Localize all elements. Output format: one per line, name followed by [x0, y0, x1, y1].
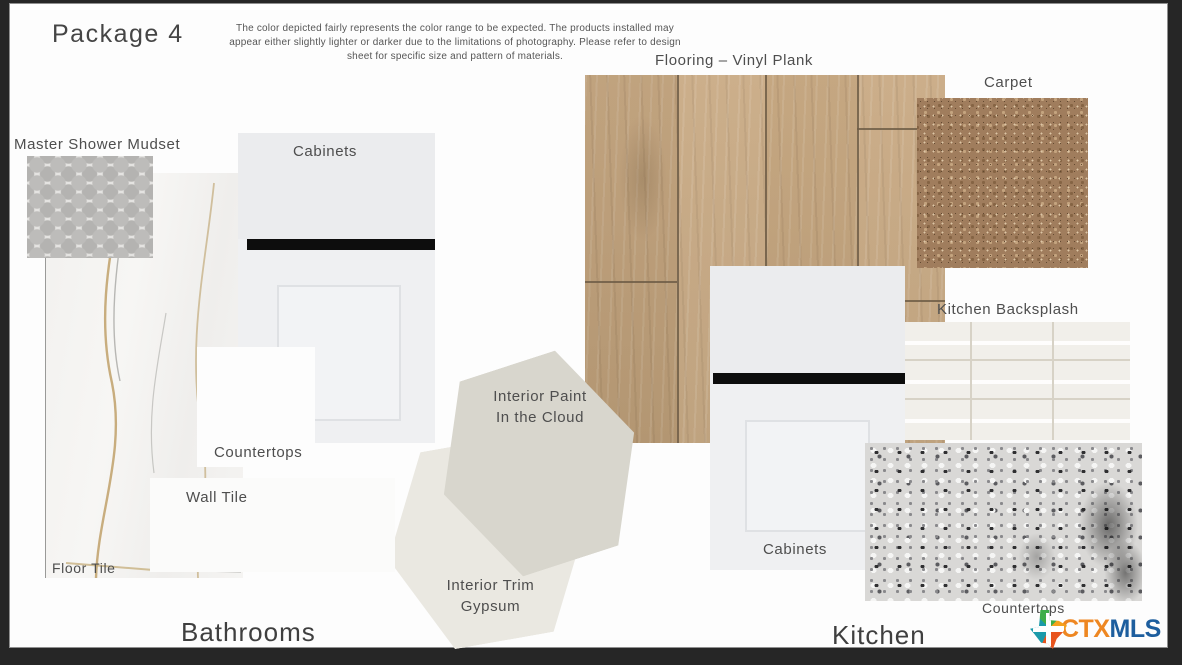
logo-ctx-text: CTX: [1061, 615, 1110, 644]
interior-paint-label: Interior Paint: [455, 386, 625, 407]
interior-trim-color-name: Gypsum: [408, 596, 573, 617]
cabinet-handle-bar: [713, 373, 905, 384]
logo-mls-text: MLS: [1110, 615, 1161, 644]
cabinet-handle-bar: [247, 239, 435, 250]
color-disclaimer-text: The color depicted fairly represents the…: [226, 22, 684, 64]
design-board: Package 4 The color depicted fairly repr…: [0, 0, 1182, 665]
interior-paint-color-name: In the Cloud: [455, 407, 625, 428]
kitchen-backsplash-label: Kitchen Backsplash: [937, 301, 1079, 318]
interior-trim-label: Interior Trim: [408, 575, 573, 596]
master-shower-mudset-swatch: [27, 156, 153, 258]
grout-line: [905, 398, 1130, 400]
bathroom-cabinets-label: Cabinets: [293, 143, 357, 160]
kitchen-section-label: Kitchen: [832, 620, 926, 651]
cabinet-shaker-panel: [745, 420, 870, 532]
plus-icon: [1033, 626, 1064, 632]
grout-line: [1052, 322, 1054, 440]
bathroom-countertops-label: Countertops: [214, 444, 302, 461]
plank-seam: [585, 281, 677, 283]
flooring-vinyl-plank-label: Flooring – Vinyl Plank: [655, 52, 813, 69]
wall-tile-label: Wall Tile: [186, 489, 248, 506]
ctxmls-logo: CTX MLS: [1030, 610, 1161, 649]
carpet-label: Carpet: [984, 74, 1033, 91]
kitchen-countertop-swatch: [865, 443, 1142, 601]
cabinet-upper-panel: [710, 266, 905, 373]
page-title: Package 4: [52, 20, 184, 49]
kitchen-backsplash-swatch: [905, 322, 1130, 440]
grout-line: [905, 359, 1130, 361]
carpet-swatch: [917, 98, 1088, 268]
plank-divider: [677, 75, 679, 443]
grout-line: [970, 322, 972, 440]
master-shower-mudset-label: Master Shower Mudset: [14, 136, 180, 153]
kitchen-cabinets-label: Cabinets: [763, 541, 827, 558]
floor-tile-label: Floor Tile: [52, 560, 116, 576]
bathrooms-section-label: Bathrooms: [181, 617, 316, 648]
